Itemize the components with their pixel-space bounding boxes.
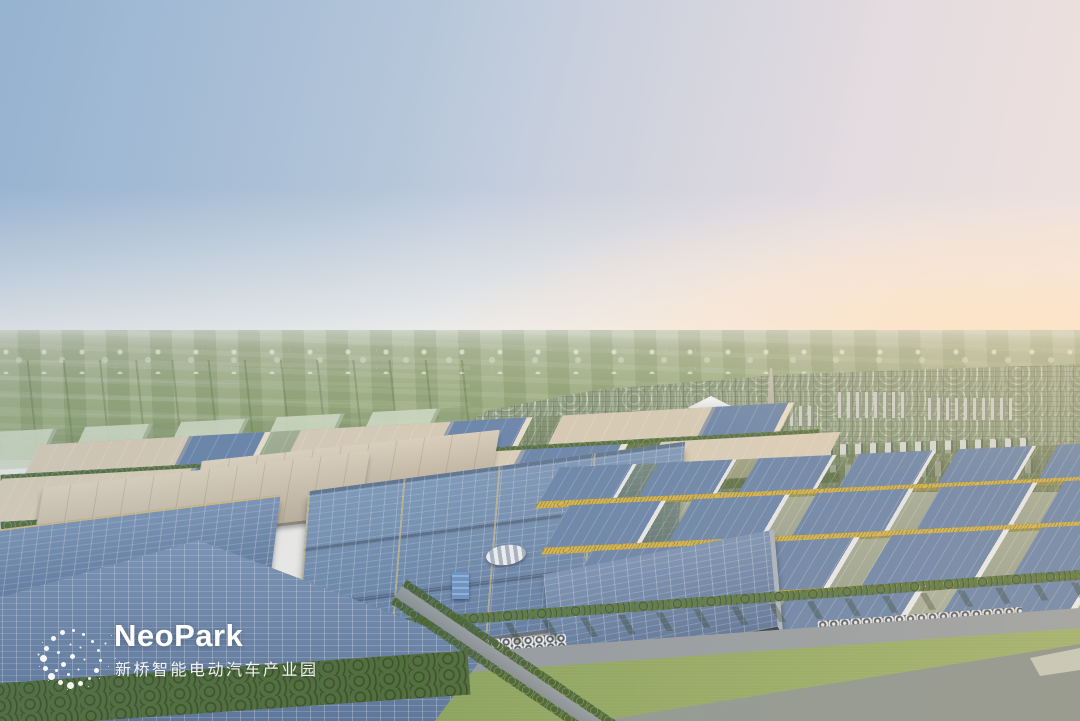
aerial-render-scene: NeoPark 新桥智能电动汽车产业园 xyxy=(0,0,1080,721)
brand-name: NeoPark xyxy=(114,618,364,654)
tower-cluster xyxy=(928,398,1012,420)
logo-dot xyxy=(70,654,75,659)
sky-gradient xyxy=(0,0,1080,342)
tower-cluster xyxy=(838,392,908,418)
dotted-sphere-logo-icon xyxy=(34,614,110,698)
brand-subtitle: 新桥智能电动汽车产业园 xyxy=(115,656,370,680)
brand-watermark: NeoPark 新桥智能电动汽车产业园 xyxy=(30,606,370,706)
blue-glass-tower xyxy=(452,572,469,599)
